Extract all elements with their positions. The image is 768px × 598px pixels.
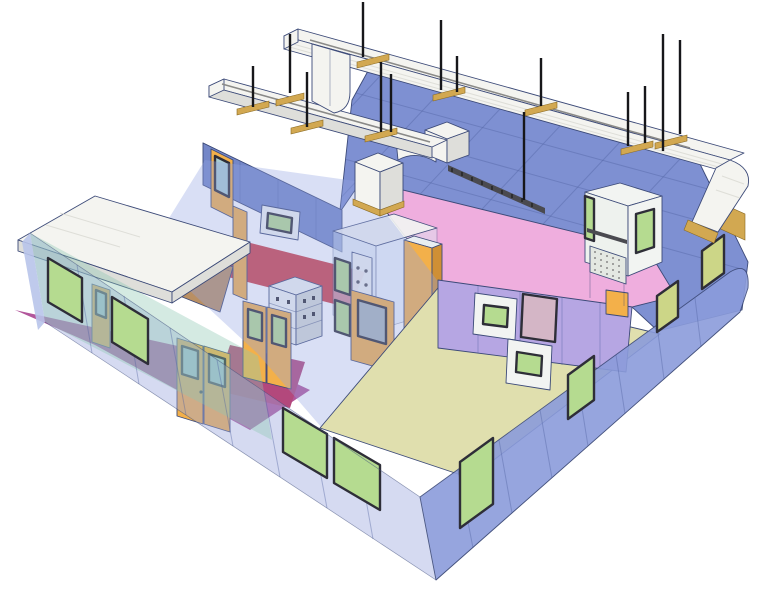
hood-side-glass <box>585 196 594 241</box>
cleanroom-scene <box>0 0 768 598</box>
fan-filter-unit-1 <box>353 153 404 216</box>
hood-front-window <box>636 209 654 253</box>
cleanroom-3d-illustration <box>0 0 768 598</box>
wall-window-pink <box>521 294 557 342</box>
duct-elbow <box>312 44 350 113</box>
wall-opening-orange <box>606 290 628 317</box>
pass-through-1 <box>473 293 517 340</box>
pass-through-2 <box>506 339 552 390</box>
